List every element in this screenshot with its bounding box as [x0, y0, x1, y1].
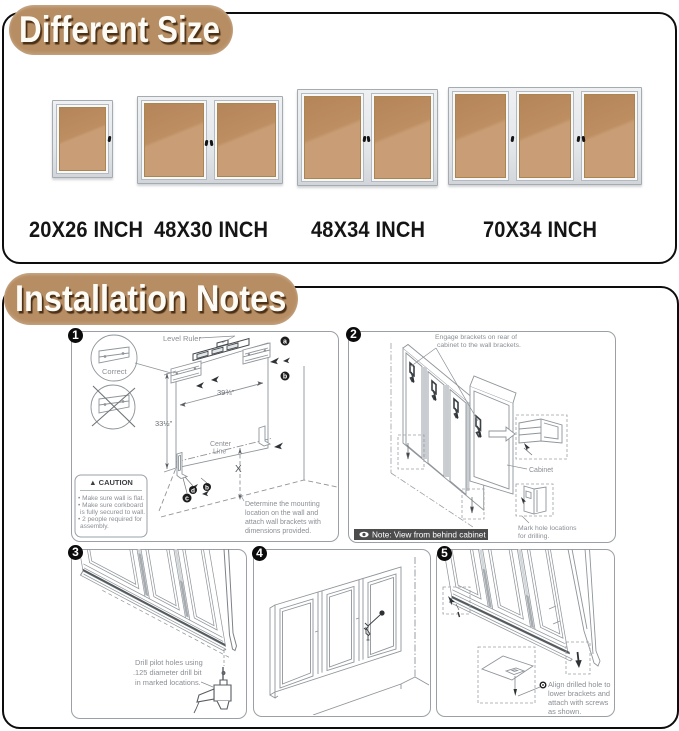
svg-text:dimensions provided.: dimensions provided. — [245, 528, 311, 535]
svg-text:Align drilled hole to: Align drilled hole to — [548, 680, 610, 689]
svg-text:Correct: Correct — [102, 367, 128, 376]
svg-text:• Make sure corkboard: • Make sure corkboard — [78, 502, 144, 509]
svg-text:d: d — [191, 487, 195, 494]
svg-text:39¾": 39¾" — [217, 388, 235, 397]
svg-text:for drilling.: for drilling. — [518, 533, 549, 540]
svg-text:b: b — [205, 484, 209, 491]
svg-text:c: c — [185, 496, 189, 503]
svg-text:lower brackets and: lower brackets and — [548, 689, 610, 698]
svg-text:X: X — [235, 464, 242, 475]
svg-text:▲ CAUTION: ▲ CAUTION — [89, 478, 133, 487]
svg-text:Drill pilot holes using: Drill pilot holes using — [135, 658, 203, 667]
svg-text:in marked locations.: in marked locations. — [135, 678, 201, 687]
svg-text:a: a — [283, 339, 287, 346]
svg-text:Mark hole locations: Mark hole locations — [518, 525, 577, 532]
svg-text:attach with screws: attach with screws — [548, 698, 609, 707]
svg-text:Note: View from behind cabinet: Note: View from behind cabinet — [372, 531, 486, 540]
svg-text:Line: Line — [213, 449, 226, 456]
svg-text:Center: Center — [210, 441, 232, 448]
svg-text:is fully secured to wall.: is fully secured to wall. — [80, 509, 145, 516]
svg-text:as shown.: as shown. — [548, 707, 581, 715]
svg-text:Level Ruler: Level Ruler — [163, 334, 201, 343]
svg-text:Engage brackets on rear of: Engage brackets on rear of — [435, 334, 517, 341]
svg-text:• Make sure wall is flat.: • Make sure wall is flat. — [78, 495, 144, 502]
svg-text:attach wall brackets with: attach wall brackets with — [245, 519, 321, 526]
svg-text:33½": 33½" — [155, 419, 173, 428]
svg-text:b: b — [283, 374, 287, 381]
svg-text:cabinet to the wall brackets.: cabinet to the wall brackets. — [437, 342, 521, 349]
svg-text:• 2 people required for: • 2 people required for — [78, 516, 143, 523]
svg-text:assembly.: assembly. — [80, 523, 109, 530]
svg-text:location on the wall and: location on the wall and — [245, 510, 318, 517]
svg-text:Cabinet: Cabinet — [529, 467, 553, 474]
svg-text:Determine the mounting: Determine the mounting — [245, 501, 320, 508]
svg-text:.125 diameter drill bit: .125 diameter drill bit — [133, 668, 202, 677]
